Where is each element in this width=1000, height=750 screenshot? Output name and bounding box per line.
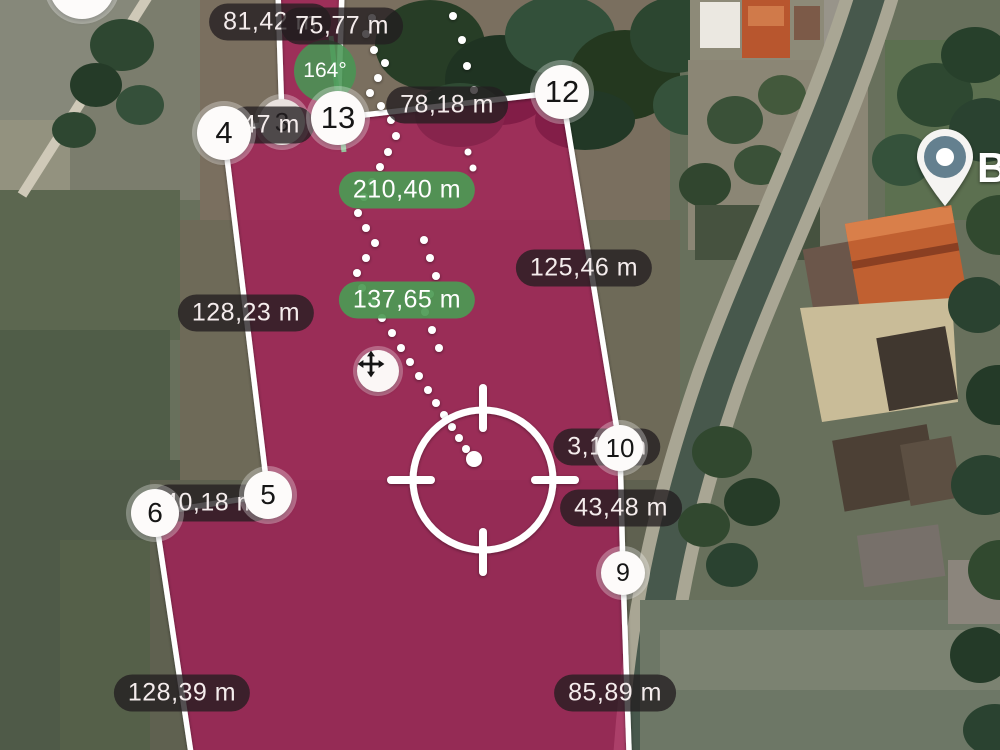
vertex-marker-5[interactable]: 5 [244,471,292,519]
poi-pin-icon[interactable] [913,128,977,208]
move-arrows-icon [357,350,385,378]
distance-label-128-23: 128,23 m [178,295,314,332]
vertex-marker-10[interactable]: 10 [597,425,643,471]
vertex-marker-12[interactable]: 12 [535,65,589,119]
distance-label-85-89: 85,89 m [554,675,676,712]
crosshair-target-icon [383,380,583,580]
distance-label-75-77: 75,77 m [281,8,403,45]
vertex-marker-13[interactable]: 13 [311,91,365,145]
distance-label-125-46: 125,46 m [516,250,652,287]
compass-angle-value: 164° [303,59,346,83]
distance-label-210-40: 210,40 m [339,172,475,209]
vertex-marker-9[interactable]: 9 [601,551,645,595]
distance-label-78-18: 78,18 m [386,87,508,124]
map-canvas[interactable]: 164° 81,42 m 75,77 m 78,18 m 47 m 210,40… [0,0,1000,750]
vertex-marker-6[interactable]: 6 [131,489,179,537]
vertex-marker-4[interactable]: 4 [197,106,251,160]
poi-label: B [977,144,1000,192]
distance-label-128-39: 128,39 m [114,675,250,712]
distance-label-137-65: 137,65 m [339,282,475,319]
